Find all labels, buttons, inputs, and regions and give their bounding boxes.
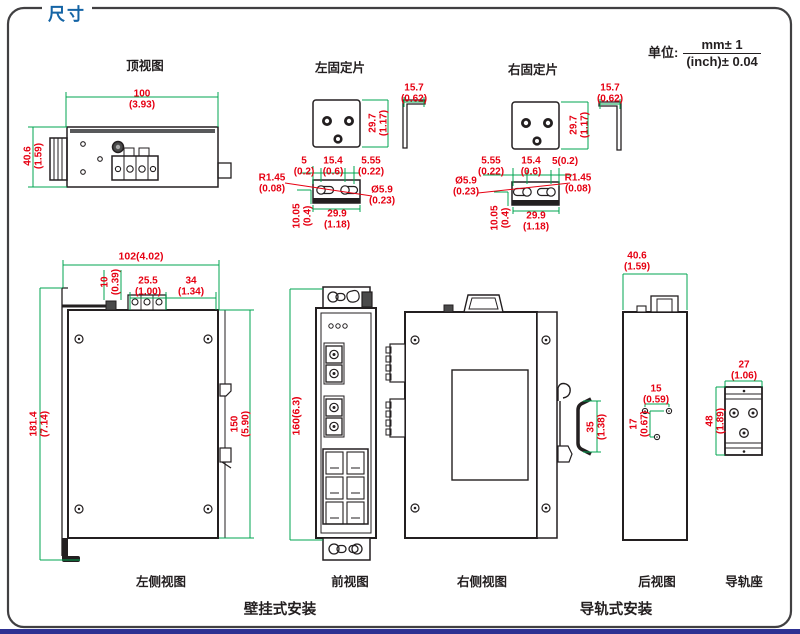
- dim-left-plate-hole: Ø5.9(0.23): [369, 186, 395, 207]
- dimension-drawing-page: 尺寸 单位: mm± 1 (inch)± 0.04 顶视图 左固定片 右固定片 …: [0, 0, 800, 634]
- dim-right-plate-depth: 10.05(0.4): [491, 205, 512, 230]
- caption-din-mount: 导轨式安装: [580, 598, 653, 619]
- dim-side-right: 34(1.34): [178, 277, 204, 298]
- dim-side-body-height: 150(5.90): [231, 411, 252, 437]
- caption-right-side-view: 右侧视图: [457, 571, 507, 590]
- caption-rail-mount: 导轨座: [725, 571, 763, 590]
- dim-right-plate-width: 29.9(1.18): [523, 212, 549, 233]
- dim-left-plate-tab: 15.7(0.62): [401, 84, 427, 105]
- dim-right-plate-pitch: 15.4(0.6): [521, 157, 542, 178]
- caption-left-side-view: 左侧视图: [136, 571, 186, 590]
- page-title: 尺寸: [42, 0, 92, 25]
- caption-wall-mount: 壁挂式安装: [244, 598, 317, 619]
- caption-rear-view: 后视图: [638, 571, 676, 590]
- dim-right-plate-edge: 5(0.2): [552, 157, 578, 168]
- right-side-view-drawing: [386, 295, 591, 538]
- dim-left-plate-radius: R1.45(0.08): [259, 174, 286, 195]
- dim-right-plate-offset: 5.55(0.22): [478, 157, 504, 178]
- dim-left-plate-width: 29.9(1.18): [324, 210, 350, 231]
- dim-top-view-width: 100(3.93): [129, 90, 155, 111]
- dim-side-block: 25.5(1.00): [135, 277, 161, 298]
- dim-left-plate-pitch: 15.4(0.6): [323, 157, 344, 178]
- unit-label: 单位:: [648, 45, 678, 61]
- left-side-view-drawing: [62, 288, 231, 562]
- unit-annotation: 单位: mm± 1 (inch)± 0.04: [648, 37, 761, 69]
- dim-right-plate-height: 29.7(1.17): [570, 112, 591, 138]
- dim-right-plate-hole: Ø5.9(0.23): [453, 177, 479, 198]
- top-view-drawing: [50, 127, 231, 187]
- dim-mount-height: 48(1.89): [706, 408, 727, 434]
- dim-rear-hole-drop: 17(0.67): [630, 411, 651, 437]
- unit-inch: (inch)± 0.04: [683, 53, 760, 70]
- dim-top-view-height: 40.6(1.59): [24, 143, 45, 169]
- rail-mount-drawing: [725, 387, 762, 455]
- dim-rear-width: 40.6(1.59): [624, 252, 650, 273]
- dim-din-rail-width: 35(1.38): [587, 414, 608, 440]
- caption-right-plate: 右固定片: [508, 59, 558, 78]
- caption-left-plate: 左固定片: [315, 57, 365, 76]
- caption-top-view: 顶视图: [126, 55, 164, 74]
- dim-left-plate-edge: 5(0.2): [294, 157, 315, 178]
- dim-left-plate-depth: 10.05(0.4): [293, 203, 314, 228]
- caption-front-view: 前视图: [331, 571, 369, 590]
- dim-left-plate-offset: 5.55(0.22): [358, 157, 384, 178]
- dim-side-total-height: 181.4(7.14): [30, 411, 51, 437]
- unit-mm: mm± 1: [683, 37, 760, 53]
- dim-right-plate-radius: R1.45(0.08): [565, 174, 592, 195]
- dim-rear-hole-pitch: 15(0.59): [643, 385, 669, 406]
- dim-mount-width: 27(1.06): [731, 361, 757, 382]
- front-view-drawing: [316, 287, 376, 560]
- unit-fraction: mm± 1 (inch)± 0.04: [683, 37, 760, 69]
- dim-side-width: 102(4.02): [119, 251, 164, 262]
- dim-side-offset: 10(0.39): [101, 269, 122, 295]
- dim-left-plate-height: 29.7(1.17): [369, 110, 390, 136]
- dim-right-plate-tab: 15.7(0.62): [597, 84, 623, 105]
- dim-front-height: 160(6.3): [291, 396, 302, 435]
